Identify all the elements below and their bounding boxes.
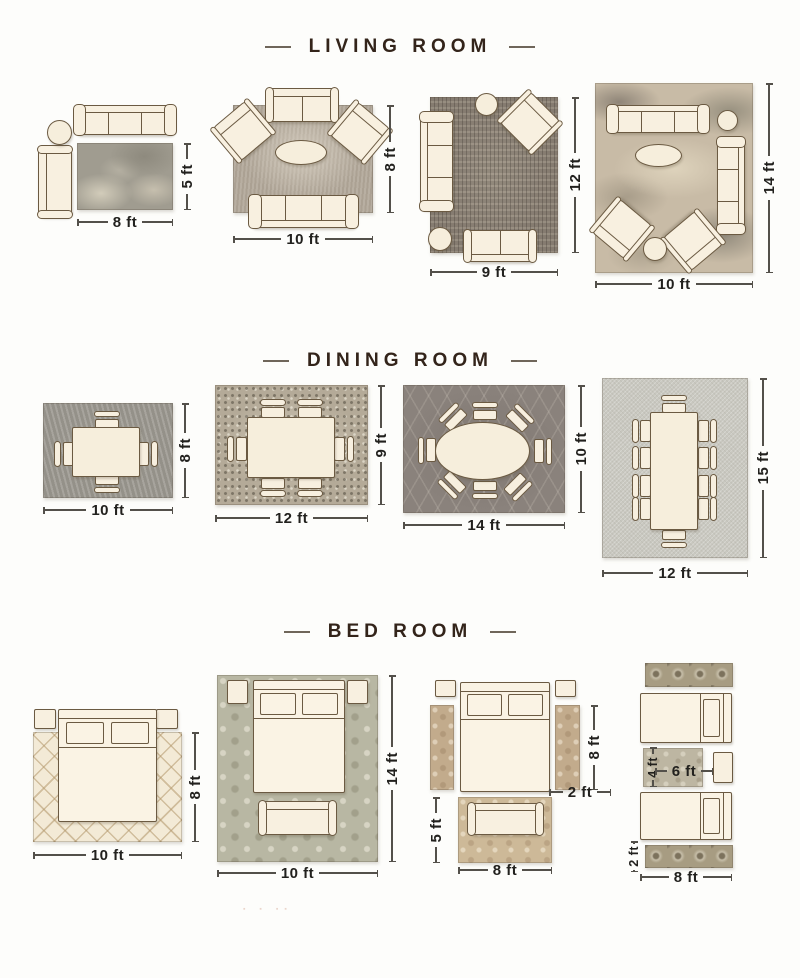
section-title-bed-room: BED ROOM	[0, 621, 800, 643]
pillow	[703, 798, 720, 833]
dim-line	[35, 854, 86, 856]
dimension-label: 2 ft	[549, 783, 611, 801]
dining-chair	[227, 437, 247, 461]
sofa-seat	[428, 114, 452, 209]
coffee-table-oval	[635, 144, 682, 167]
nightstand	[34, 709, 56, 729]
dim-text: 8 ft	[488, 863, 523, 878]
bed-room-twin-layout: 4 ft6 ft2 ft8 ft	[625, 655, 797, 900]
pillow	[703, 699, 720, 736]
headboard	[461, 683, 549, 692]
sofa-back	[466, 254, 534, 261]
sofa-3seat	[608, 105, 708, 133]
sofa-arm	[716, 223, 746, 235]
bed-body	[641, 694, 700, 742]
area-rug	[77, 143, 173, 210]
headboard	[723, 694, 731, 742]
chair-back	[347, 436, 354, 462]
dim-line	[652, 749, 654, 754]
chair-back	[632, 497, 639, 521]
dim-line	[319, 872, 376, 874]
pillow	[302, 693, 338, 715]
dining-chair	[662, 530, 686, 548]
section-title-dining-room: DINING ROOM	[0, 350, 800, 372]
dim-line	[184, 405, 186, 434]
bed-room-10x8ft-rug: 10 ft8 ft	[18, 695, 218, 875]
chair-back	[710, 474, 717, 498]
sofa-arm	[419, 111, 454, 123]
dining-chair	[95, 475, 119, 493]
bench	[469, 803, 542, 835]
sofa-seat	[609, 112, 707, 132]
chair-back	[661, 542, 687, 548]
pillow	[467, 694, 502, 716]
pillow-row	[59, 719, 156, 748]
dim-tick	[184, 209, 191, 211]
chair-back	[710, 446, 717, 470]
loveseat	[267, 88, 337, 122]
dimension-label: 14 ft	[760, 83, 778, 273]
dim-line	[391, 677, 393, 747]
nightstand	[555, 680, 576, 697]
sofa-back	[268, 89, 336, 97]
dim-line	[235, 238, 282, 240]
side-table-round	[475, 93, 498, 116]
dim-text: 5 ft	[429, 813, 444, 848]
dining-chair	[662, 395, 686, 413]
sofa-arm	[467, 802, 476, 836]
dim-text: 10 ft	[86, 848, 129, 863]
dining-room-12ft-rug: 12 ft9 ft	[208, 378, 400, 534]
chair-back	[546, 438, 552, 464]
dim-line	[593, 707, 595, 731]
headboard	[59, 710, 156, 719]
chair-back	[297, 490, 323, 497]
dining-chair	[534, 439, 552, 463]
dim-text: 5 ft	[180, 159, 195, 194]
nightstand	[713, 752, 733, 783]
sofa-cushion	[470, 811, 541, 834]
sofa-arm	[37, 145, 73, 154]
nightstand	[347, 680, 368, 704]
sofa-back	[261, 802, 334, 810]
dimension-label: 10 ft	[233, 230, 373, 248]
dim-line	[391, 790, 393, 860]
dimension-label: 8 ft	[176, 403, 194, 498]
dimension-label: 8 ft	[186, 732, 204, 842]
chair-back	[710, 497, 717, 521]
dining-table	[247, 417, 335, 478]
nightstand	[435, 680, 456, 697]
chair-seat	[261, 478, 285, 489]
dim-tick	[433, 862, 440, 864]
twin-bed	[640, 693, 732, 743]
dining-chair	[698, 475, 717, 497]
pillow-row	[700, 793, 723, 839]
chair-back	[94, 487, 120, 493]
title-dash	[511, 360, 537, 363]
chair-seat	[662, 530, 686, 540]
dim-tick	[578, 512, 585, 514]
pillow	[111, 722, 149, 744]
chair-seat	[473, 410, 497, 420]
dim-tick	[650, 786, 657, 788]
chair-seat	[698, 498, 709, 520]
sofa-back	[39, 148, 47, 216]
section-heading: BED ROOM	[328, 621, 473, 643]
dim-line	[405, 524, 463, 526]
dining-chair	[698, 498, 717, 520]
sofa-arm	[535, 802, 544, 836]
bed-body	[641, 793, 700, 839]
dining-chair	[138, 442, 158, 466]
dim-line	[574, 197, 576, 252]
dimension-label: 9 ft	[430, 263, 558, 281]
dining-chair	[632, 498, 651, 520]
dim-line	[580, 387, 582, 428]
bed-body	[461, 720, 549, 791]
dim-tick	[192, 841, 199, 843]
dining-chair	[698, 447, 717, 469]
dimension-label: 8 ft	[585, 705, 603, 790]
dimension-label: 12 ft	[215, 509, 368, 527]
dim-line	[186, 145, 188, 160]
chair-seat	[298, 478, 322, 489]
bed-body	[59, 748, 156, 821]
sofa-cushion	[285, 196, 320, 220]
dining-room-10ft-rug: 10 ft8 ft	[28, 395, 204, 527]
dim-text: 8 ft	[188, 770, 203, 805]
dim-text: 15 ft	[756, 446, 771, 489]
dim-text: 12 ft	[568, 153, 583, 196]
dim-line	[574, 99, 576, 154]
dim-line	[129, 854, 180, 856]
dim-line	[432, 271, 477, 273]
dim-line	[380, 387, 382, 428]
pillow-row	[700, 694, 723, 742]
sofa-seat	[466, 231, 534, 254]
dimension-label: 8 ft	[458, 861, 552, 879]
dimension-label: 8 ft	[640, 868, 732, 886]
headboard	[254, 681, 344, 690]
dim-line	[380, 462, 382, 503]
sofa-arm	[73, 104, 86, 136]
dim-text: 8 ft	[108, 215, 143, 230]
sofa-arm	[328, 800, 337, 836]
dim-line	[762, 380, 764, 447]
sofa-3seat	[420, 113, 453, 210]
dim-line	[389, 176, 391, 211]
chair-seat	[698, 475, 709, 497]
dim-line	[435, 847, 437, 861]
dining-chair	[54, 442, 74, 466]
section-heading: LIVING ROOM	[309, 36, 492, 58]
dim-tick	[564, 522, 566, 529]
dining-chair	[698, 420, 717, 442]
side-table-round	[428, 227, 452, 251]
sofa-cushion	[718, 169, 738, 200]
dim-text: 8 ft	[669, 870, 704, 885]
dim-line	[184, 468, 186, 497]
chair-seat	[236, 437, 247, 461]
title-dash	[265, 46, 291, 49]
dimension-label: 14 ft	[383, 675, 401, 862]
section-heading: DINING ROOM	[307, 350, 493, 372]
chair-seat	[698, 420, 709, 442]
pillow	[66, 722, 104, 744]
chair-back	[418, 437, 424, 463]
dim-line	[696, 283, 752, 285]
sofa-arm	[419, 200, 454, 212]
living-room-8ft-rug: 8 ft5 ft	[28, 95, 204, 240]
chair-back	[297, 399, 323, 406]
dining-chair	[632, 447, 651, 469]
dim-line	[219, 872, 276, 874]
dim-text: 12 ft	[653, 566, 696, 581]
bed-room-10x14ft-rug: 10 ft14 ft	[200, 658, 412, 900]
sofa-cushion	[108, 113, 141, 134]
pillow-row	[461, 692, 549, 720]
runner-rug	[555, 705, 580, 790]
sofa-back	[76, 106, 174, 113]
sofa-seat	[718, 139, 738, 232]
sofa-cushion	[47, 148, 71, 216]
dimension-label: 8 ft	[381, 105, 399, 213]
sofa-3seat	[717, 138, 745, 233]
chair-back	[94, 411, 120, 417]
dimension-label: 10 ft	[217, 864, 378, 882]
dim-line	[389, 107, 391, 142]
title-dash	[284, 631, 310, 634]
sofa-arm	[606, 104, 619, 134]
dim-text: 8 ft	[587, 730, 602, 765]
dim-tick	[712, 768, 714, 775]
headboard	[723, 793, 731, 839]
chair-seat	[698, 447, 709, 469]
chair-back	[151, 441, 158, 467]
section-title-living-room: LIVING ROOM	[0, 36, 800, 58]
sofa-arm	[463, 229, 472, 263]
dim-text: 14 ft	[462, 518, 505, 533]
dim-tick	[752, 281, 754, 288]
dim-text: 10 ft	[574, 427, 589, 470]
runner-rug	[645, 845, 733, 868]
living-room-10ft-rug: 10 ft8 ft	[212, 88, 404, 258]
coffee-table-oval	[275, 140, 327, 165]
dim-line	[697, 572, 747, 574]
dim-text: 2 ft	[628, 843, 641, 870]
dim-text: 12 ft	[270, 511, 313, 526]
dimension-label: 10 ft	[572, 385, 590, 513]
dim-tick	[766, 272, 773, 274]
dim-line	[522, 869, 550, 871]
dining-chair	[632, 475, 651, 497]
dim-tick	[557, 269, 559, 276]
dim-line	[768, 85, 770, 157]
dim-tick	[389, 861, 396, 863]
dim-tick	[747, 570, 749, 577]
dim-line	[435, 799, 437, 813]
dim-line	[142, 221, 171, 223]
pillow	[260, 693, 296, 715]
dining-table-oval	[435, 422, 530, 480]
dim-line	[194, 804, 196, 840]
sofa-seat	[76, 113, 174, 134]
dimension-label: 10 ft	[43, 501, 173, 519]
sofa-arm	[345, 194, 359, 229]
dim-line	[657, 770, 667, 772]
dim-line	[597, 283, 653, 285]
sofa-back	[738, 139, 744, 232]
dim-text: 9 ft	[477, 265, 512, 280]
dim-text: 8 ft	[383, 142, 398, 177]
chair-back	[260, 399, 286, 406]
pillow	[508, 694, 543, 716]
sofa-3seat	[250, 195, 357, 228]
dimension-label: 14 ft	[403, 516, 565, 534]
loveseat	[465, 230, 535, 262]
chaise-lounge	[38, 147, 72, 217]
dim-text: 9 ft	[374, 428, 389, 463]
dim-text: 10 ft	[86, 503, 129, 518]
dimension-label: 10 ft	[595, 275, 753, 293]
side-table-round	[47, 120, 72, 145]
dim-tick	[372, 236, 374, 243]
chair-back	[632, 446, 639, 470]
nightstand	[156, 709, 178, 729]
sofa-3seat	[75, 105, 175, 135]
dim-line	[217, 517, 270, 519]
dim-tick	[378, 504, 385, 506]
sofa-cushion	[261, 810, 334, 834]
chair-back	[632, 474, 639, 498]
dim-tick	[172, 219, 174, 226]
sofa-seat	[261, 810, 334, 834]
title-dash	[263, 360, 289, 363]
bed	[58, 709, 157, 822]
chair-back	[472, 402, 498, 408]
sofa-seat	[470, 811, 541, 834]
dining-chair	[473, 481, 497, 499]
sofa-arm	[716, 136, 746, 148]
sofa-cushion	[428, 145, 452, 177]
dim-line	[551, 791, 563, 793]
dim-tick	[377, 870, 379, 877]
dining-room-14ft-rug: 14 ft10 ft	[398, 378, 598, 540]
dimension-label: 5 ft	[427, 797, 445, 863]
chair-back	[710, 419, 717, 443]
dim-line	[313, 517, 366, 519]
dim-line	[45, 509, 87, 511]
chair-seat	[534, 439, 544, 463]
sofa-back	[470, 804, 541, 811]
dimension-label: 12 ft	[602, 564, 748, 582]
dim-line	[506, 524, 564, 526]
twin-bed	[640, 792, 732, 840]
chair-seat	[473, 481, 497, 491]
sofa-cushion	[641, 112, 674, 132]
sofa-seat	[251, 196, 356, 220]
dim-tick	[367, 515, 369, 522]
dim-line	[604, 572, 654, 574]
sofa-back	[421, 114, 428, 209]
sofa-arm	[265, 87, 274, 123]
dim-text: 14 ft	[762, 156, 777, 199]
chair-back	[54, 441, 61, 467]
pillow-row	[254, 690, 344, 719]
dim-line	[642, 876, 669, 878]
dim-tick	[610, 789, 612, 796]
dining-room-12x15ft-rug: 12 ft15 ft	[592, 372, 798, 600]
sofa-seat	[47, 148, 71, 216]
dim-text: 10 ft	[281, 232, 324, 247]
dim-line	[460, 869, 488, 871]
dimension-label: 15 ft	[754, 378, 772, 558]
dim-line	[768, 200, 770, 272]
dim-line	[701, 770, 711, 772]
living-room-10x14ft-rug: 10 ft14 ft	[588, 75, 794, 307]
dining-chair	[261, 478, 285, 497]
sofa-back	[251, 220, 356, 227]
bench	[260, 801, 335, 835]
sofa-arm	[37, 210, 73, 219]
dimension-label: 12 ft	[566, 97, 584, 253]
dim-line	[194, 734, 196, 770]
dim-text: 10 ft	[652, 277, 695, 292]
dim-text: 14 ft	[385, 747, 400, 790]
dim-tick	[572, 252, 579, 254]
sofa-seat	[268, 97, 336, 121]
chair-back	[260, 490, 286, 497]
dining-chair	[298, 478, 322, 497]
dimension-label: 6 ft	[655, 762, 713, 780]
dim-tick	[731, 874, 733, 881]
dim-line	[511, 271, 556, 273]
dining-chair	[298, 399, 322, 418]
watermark: ▪ ▪ ▪▪	[243, 906, 293, 913]
title-dash	[509, 46, 535, 49]
dim-line	[325, 238, 372, 240]
dim-line	[580, 471, 582, 512]
dimension-label: 10 ft	[33, 846, 182, 864]
dim-text: 10 ft	[276, 866, 319, 881]
dim-text: 8 ft	[178, 433, 193, 468]
dim-line	[79, 221, 108, 223]
side-table-round	[643, 237, 667, 261]
dining-chair	[334, 437, 354, 461]
dining-chair	[261, 399, 285, 418]
title-dash	[490, 631, 516, 634]
dim-tick	[760, 557, 767, 559]
living-room-9ft-rug: 9 ft12 ft	[408, 88, 600, 290]
bed	[460, 682, 550, 792]
sofa-arm	[528, 229, 537, 263]
dim-tick	[181, 852, 183, 859]
dim-line	[597, 791, 609, 793]
dining-chair	[418, 438, 436, 462]
dining-chair	[473, 402, 497, 420]
dimension-label: 8 ft	[77, 213, 173, 231]
dim-line	[703, 876, 730, 878]
dimension-label: 5 ft	[178, 143, 196, 210]
chair-back	[472, 493, 498, 499]
sofa-arm	[248, 194, 262, 229]
bed	[253, 680, 345, 793]
chair-back	[661, 395, 687, 401]
bed-body	[254, 719, 344, 792]
sofa-arm	[697, 104, 710, 134]
nightstand	[227, 680, 248, 704]
